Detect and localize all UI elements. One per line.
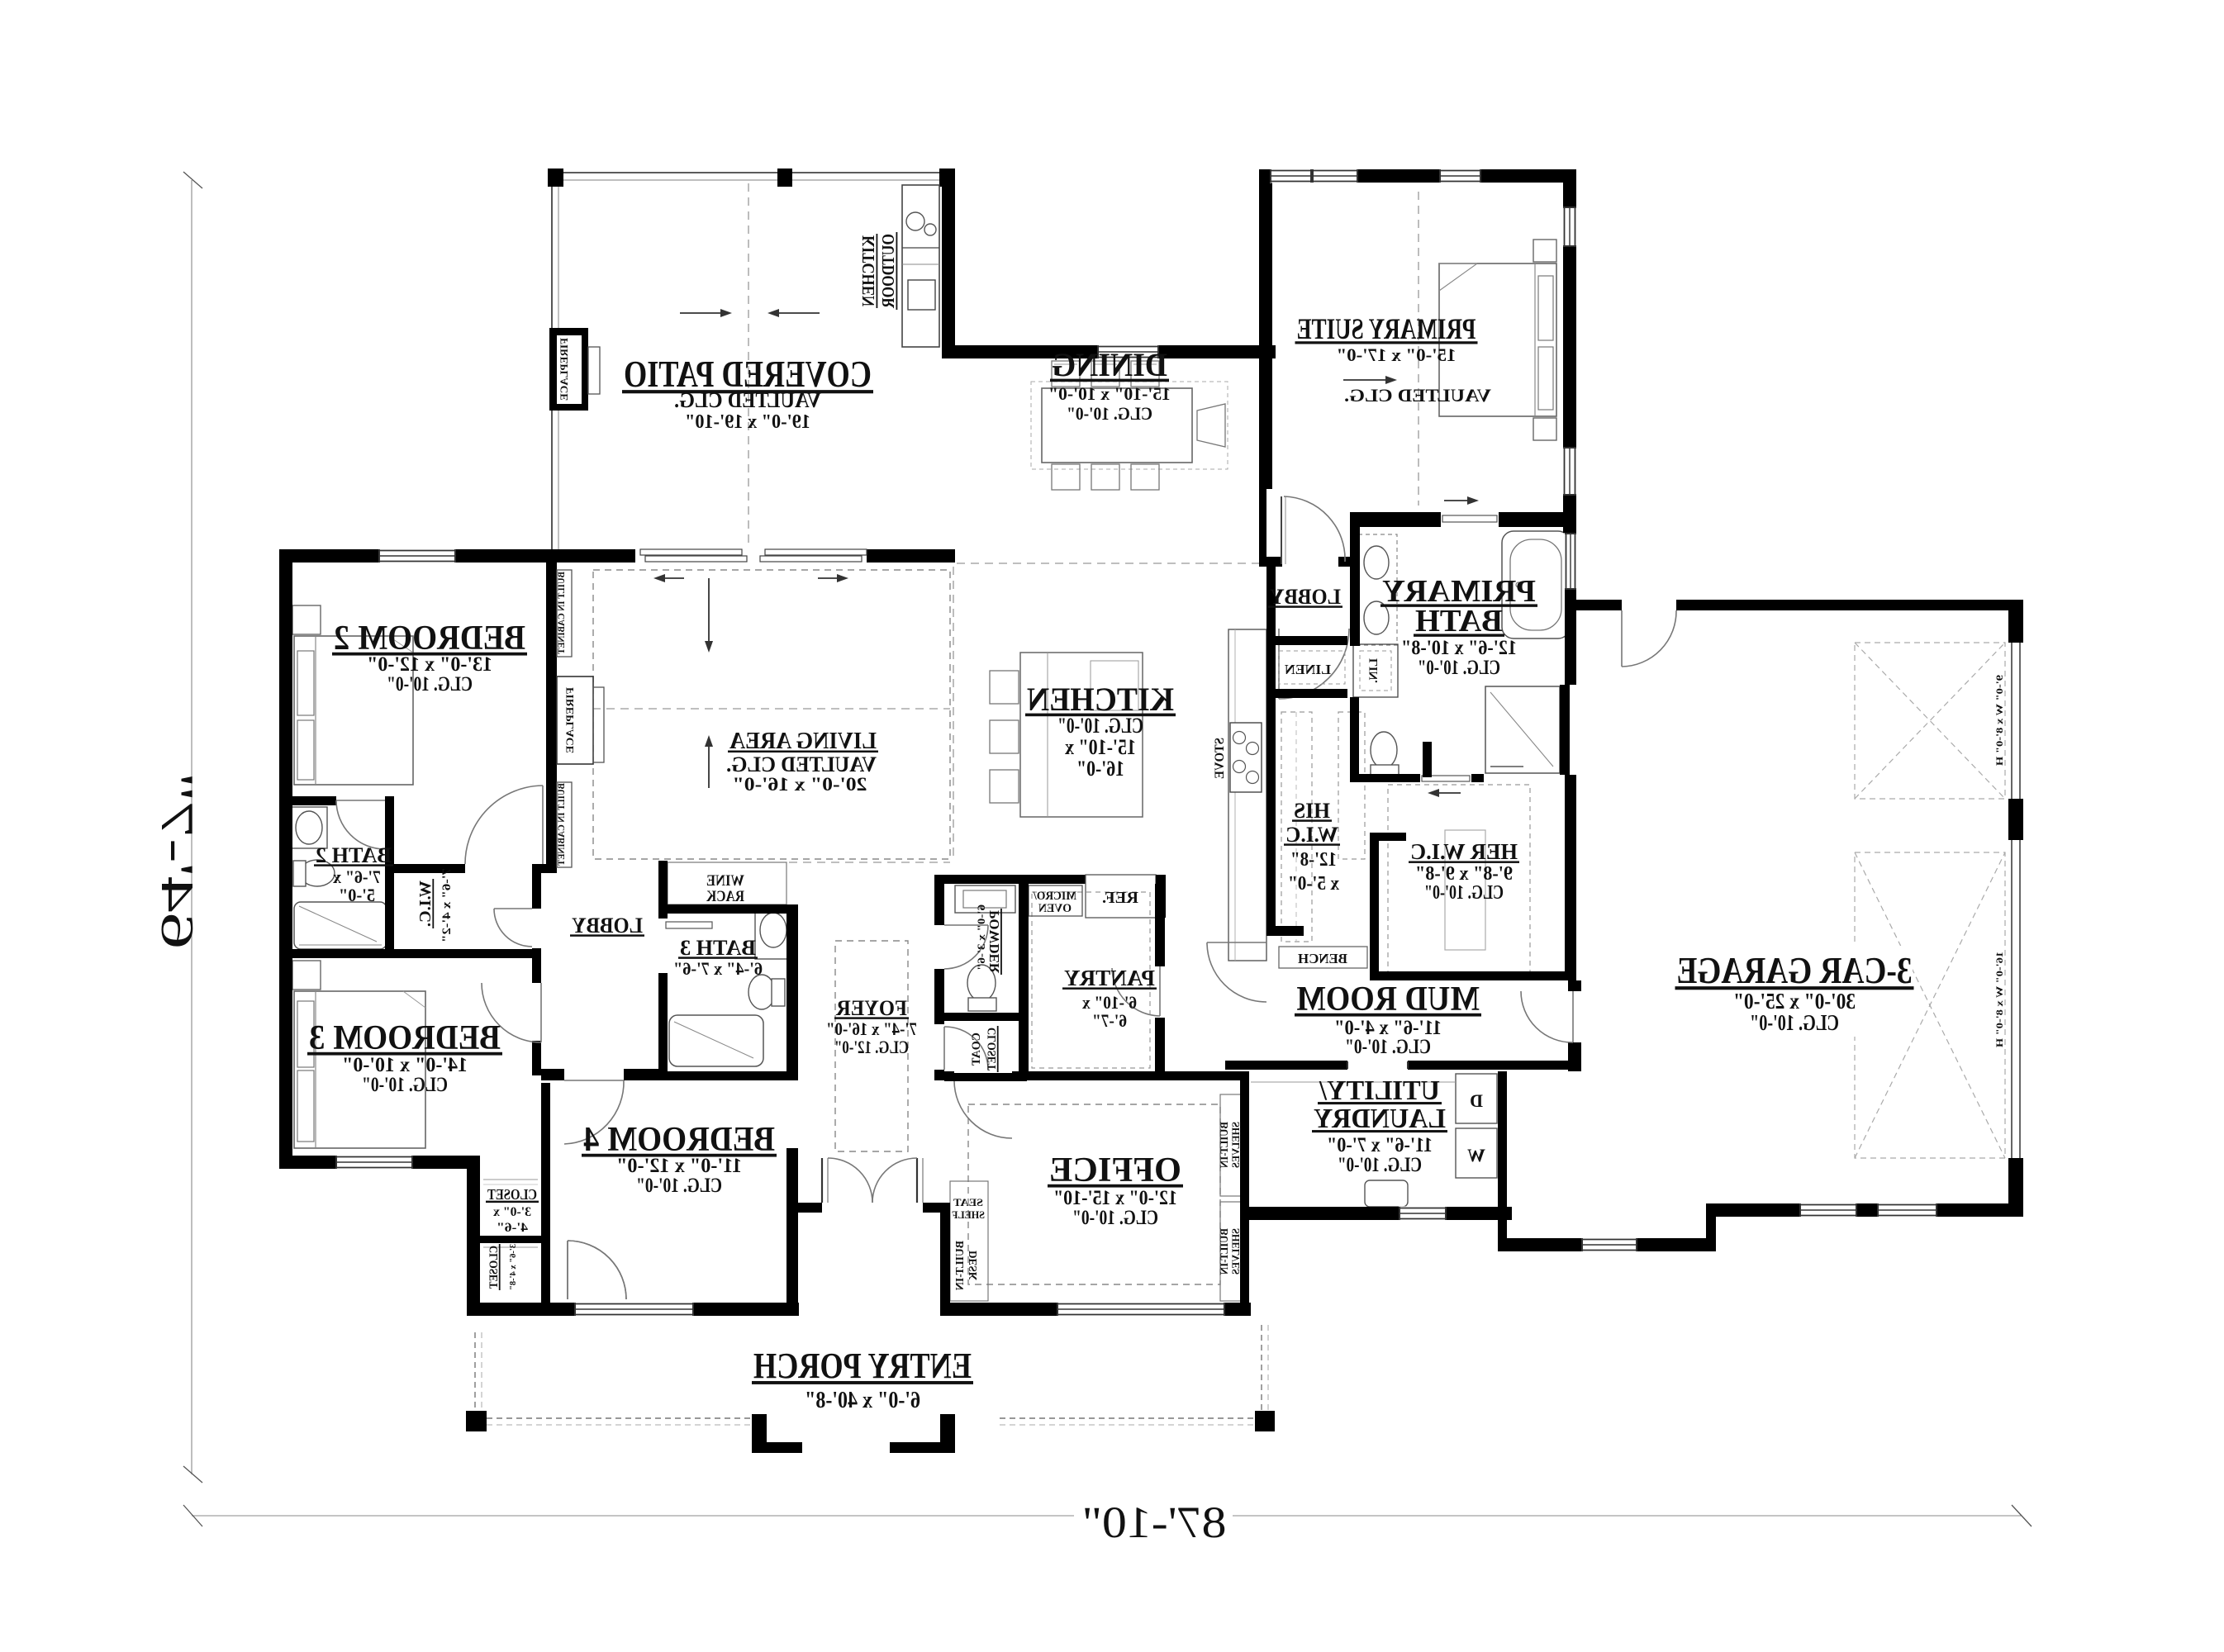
svg-text:FOYER: FOYER [836, 996, 907, 1020]
svg-text:CLG. 10'-0": CLG. 10'-0" [1424, 882, 1504, 904]
svg-text:OFFICE: OFFICE [1049, 1151, 1181, 1189]
svg-text:LIVING AREA: LIVING AREA [729, 729, 877, 754]
svg-text:CLG. 10'-0": CLG. 10'-0" [362, 1074, 448, 1096]
svg-text:OUTDOOR: OUTDOOR [878, 234, 898, 309]
svg-text:CLG. 10'-0": CLG. 10'-0" [1338, 1154, 1422, 1176]
svg-text:MUD ROOM: MUD ROOM [1296, 980, 1480, 1018]
svg-text:RACK: RACK [706, 888, 744, 905]
svg-text:7'-6" x 4'-2": 7'-6" x 4'-2" [440, 868, 454, 942]
svg-text:CLOSET: CLOSET [487, 1186, 537, 1203]
svg-text:PRIMARY SUITE: PRIMARY SUITE [1297, 312, 1476, 345]
svg-text:16'-0": 16'-0" [1076, 757, 1124, 781]
svg-text:CLG. 10'-0": CLG. 10'-0" [1750, 1010, 1839, 1035]
svg-text:ENTRY PORCH: ENTRY PORCH [753, 1346, 972, 1386]
svg-text:HER W.I.C: HER W.I.C [1410, 839, 1518, 864]
svg-text:SHELF: SHELF [952, 1208, 985, 1221]
svg-text:CLG. 10'-0": CLG. 10'-0" [1345, 1036, 1431, 1058]
svg-text:CLOSET: CLOSET [487, 1246, 501, 1289]
svg-text:LOBBY: LOBBY [1270, 585, 1341, 609]
svg-text:W.I.C.: W.I.C. [416, 881, 435, 927]
svg-text:16'-0" W x 8'-0" H: 16'-0" W x 8'-0" H [1994, 952, 2005, 1048]
svg-text:BATH 2: BATH 2 [316, 843, 392, 867]
svg-text:BATH 3: BATH 3 [680, 936, 756, 960]
svg-text:CLG. 12'-0": CLG. 12'-0" [834, 1037, 909, 1057]
svg-text:15'-0" x 17'-0": 15'-0" x 17'-0" [1337, 344, 1457, 365]
svg-text:3'-6" x 4'-8": 3'-6" x 4'-8" [508, 1244, 518, 1290]
svg-text:MICRO/: MICRO/ [1033, 890, 1076, 903]
svg-text:6'-0" x 40'-8": 6'-0" x 40'-8" [805, 1387, 920, 1413]
svg-text:11'-0" x 12'-0": 11'-0" x 12'-0" [616, 1155, 742, 1177]
svg-text:COAT: COAT [970, 1032, 983, 1066]
svg-text:SHELVES: SHELVES [1229, 1122, 1242, 1168]
svg-text:12'-0" x 15'-10": 12'-0" x 15'-10" [1053, 1187, 1177, 1209]
svg-text:BATH: BATH [1415, 604, 1503, 638]
svg-text:W: W [1467, 1145, 1485, 1165]
svg-text:4'-6": 4'-6" [497, 1221, 528, 1235]
svg-text:REF.: REF. [1102, 889, 1138, 907]
svg-text:CLG. 10'-0": CLG. 10'-0" [1418, 657, 1500, 679]
svg-text:19'-0" x 19'-10": 19'-0" x 19'-10" [685, 411, 810, 433]
svg-text:BUILT-IN: BUILT-IN [1218, 1122, 1230, 1169]
svg-text:3'-0" x: 3'-0" x [493, 1205, 531, 1219]
svg-text:LINEN: LINEN [1284, 662, 1331, 677]
svg-text:CLG. 10'-0": CLG. 10'-0" [1072, 1207, 1158, 1229]
svg-text:CLG. 10'-0": CLG. 10'-0" [387, 673, 473, 695]
svg-text:6'-4" x 7'-6": 6'-4" x 7'-6" [673, 958, 763, 979]
svg-text:BEDROOM 3: BEDROOM 3 [309, 1019, 501, 1057]
svg-text:15'-10" x 10'-0": 15'-10" x 10'-0" [1048, 383, 1171, 404]
svg-text:BUILT-IN: BUILT-IN [954, 1241, 967, 1290]
svg-text:FIREPLACE: FIREPLACE [558, 338, 570, 401]
svg-text:6'-7": 6'-7" [1092, 1010, 1127, 1031]
svg-text:CLG. 10'-0": CLG. 10'-0" [1067, 403, 1152, 424]
svg-text:SEAT: SEAT [953, 1196, 983, 1208]
svg-text:87'-10": 87'-10" [1082, 1498, 1227, 1547]
svg-text:POWDER: POWDER [986, 910, 1002, 974]
svg-text:WINE: WINE [706, 872, 744, 890]
svg-text:64'-7": 64'-7" [151, 772, 202, 950]
svg-text:BUILT IN CABINET: BUILT IN CABINET [555, 783, 567, 866]
svg-text:x 5'-0": x 5'-0" [1288, 873, 1339, 895]
svg-text:LIN.: LIN. [1367, 658, 1380, 683]
svg-text:9'-0" W x 8'-0" H: 9'-0" W x 8'-0" H [1994, 675, 2005, 767]
svg-text:CLG. 10'-0": CLG. 10'-0" [636, 1175, 722, 1197]
svg-text:DINING: DINING [1052, 346, 1167, 383]
svg-text:15'-10" x: 15'-10" x [1065, 735, 1136, 759]
svg-text:BEDROOM 4: BEDROOM 4 [583, 1121, 775, 1159]
svg-text:3-CAR GARAGE: 3-CAR GARAGE [1677, 949, 1913, 991]
svg-text:CLG. 10'-0": CLG. 10'-0" [1057, 714, 1143, 738]
svg-text:PANTRY: PANTRY [1064, 966, 1155, 990]
svg-text:13'-0" x 12'-0": 13'-0" x 12'-0" [367, 653, 492, 676]
svg-text:HIS: HIS [1294, 799, 1330, 823]
svg-text:VAULTED CLG.: VAULTED CLG. [674, 388, 821, 412]
svg-text:VAULTED CLG.: VAULTED CLG. [726, 752, 877, 776]
svg-text:VAULTED CLG.: VAULTED CLG. [1344, 385, 1491, 406]
svg-text:CLOSET: CLOSET [986, 1028, 999, 1070]
svg-text:LAUNDRY: LAUNDRY [1314, 1104, 1446, 1134]
svg-text:DESK: DESK [967, 1251, 980, 1280]
svg-text:STOVE: STOVE [1213, 738, 1227, 779]
svg-text:12'-6" x 10'-8": 12'-6" x 10'-8" [1401, 637, 1517, 659]
svg-text:SHELVES: SHELVES [1229, 1228, 1242, 1275]
svg-text:BUILT-IN: BUILT-IN [1218, 1228, 1230, 1275]
svg-text:20'-0" x 16'-0": 20'-0" x 16'-0" [733, 774, 867, 795]
svg-text:FIREPLACE: FIREPLACE [563, 687, 576, 753]
svg-text:6'-0" x 3'-6": 6'-0" x 3'-6" [975, 904, 987, 971]
svg-text:UTILITY/: UTILITY/ [1319, 1075, 1440, 1106]
svg-text:KITCHEN: KITCHEN [858, 235, 878, 306]
svg-text:W.I.C: W.I.C [1285, 823, 1338, 847]
svg-text:11'-6" x 7'-0": 11'-6" x 7'-0" [1327, 1134, 1433, 1156]
svg-text:BENCH: BENCH [1298, 951, 1347, 966]
svg-text:14'-0" x 10'-0": 14'-0" x 10'-0" [342, 1054, 468, 1076]
svg-text:BUILT IN CABINET: BUILT IN CABINET [555, 572, 567, 654]
svg-text:LOBBY: LOBBY [572, 914, 643, 938]
svg-text:KITCHEN: KITCHEN [1027, 681, 1174, 718]
svg-text:5'-0": 5'-0" [339, 885, 375, 905]
svg-text:BEDROOM 2: BEDROOM 2 [334, 619, 525, 657]
svg-text:12'-8": 12'-8" [1290, 849, 1337, 871]
svg-text:D: D [1470, 1090, 1483, 1111]
svg-text:OVEN: OVEN [1038, 902, 1072, 915]
